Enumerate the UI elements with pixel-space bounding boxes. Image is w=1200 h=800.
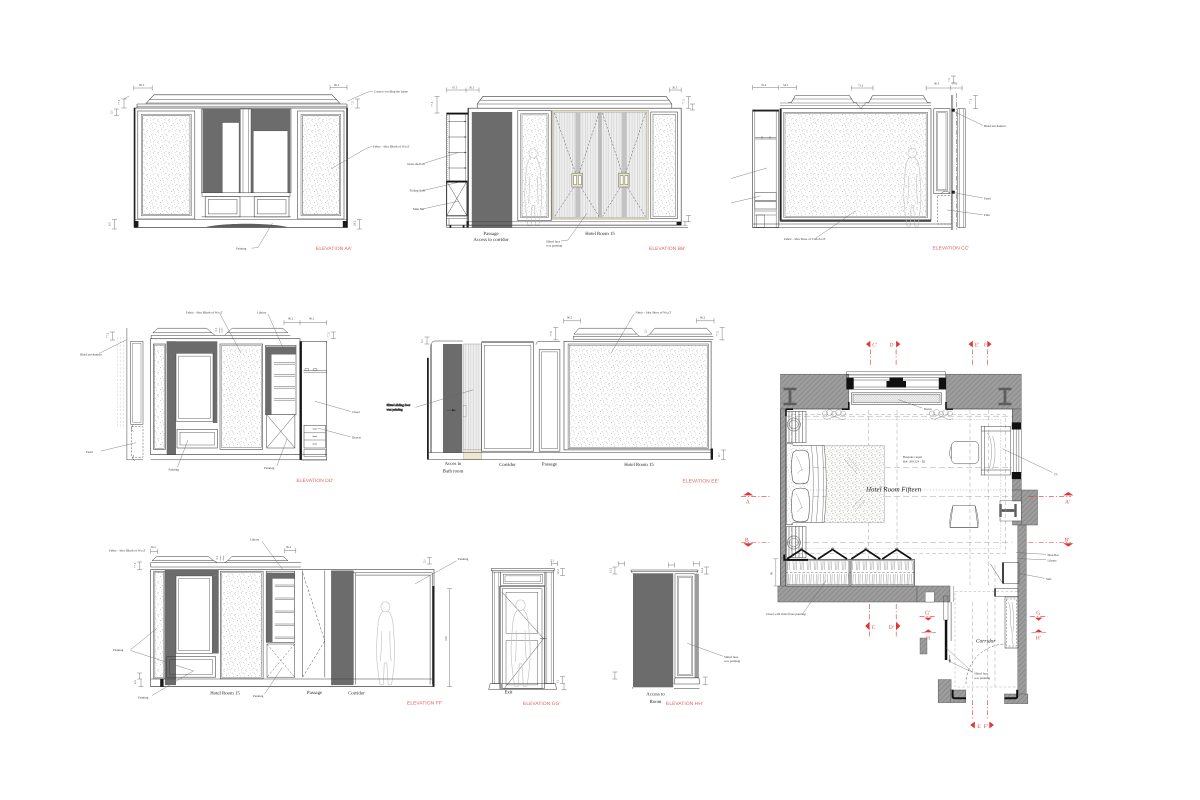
svg-text:Slitted sliding door: Slitted sliding door bbox=[387, 403, 411, 407]
svg-text:5.1: 5.1 bbox=[110, 110, 114, 114]
svg-text:G': G' bbox=[925, 611, 930, 617]
svg-text:Passage: Passage bbox=[542, 461, 557, 467]
svg-text:76.4: 76.4 bbox=[761, 83, 767, 87]
svg-text:12.2: 12.2 bbox=[700, 567, 704, 573]
svg-text:Painting: Painting bbox=[169, 467, 180, 471]
svg-text:Corridor: Corridor bbox=[499, 462, 516, 468]
svg-text:77.5: 77.5 bbox=[715, 331, 719, 337]
svg-text:Library: Library bbox=[257, 311, 267, 315]
svg-text:G: G bbox=[1036, 611, 1040, 617]
svg-text:ELEVATION AA': ELEVATION AA' bbox=[316, 246, 352, 252]
svg-text:Passage: Passage bbox=[483, 231, 498, 237]
svg-text:47.5: 47.5 bbox=[452, 85, 458, 89]
svg-text:Safe: Safe bbox=[1046, 577, 1052, 581]
svg-text:Painting: Painting bbox=[236, 247, 247, 251]
svg-text:Fabric - Idea Blinds of WxxT: Fabric - Idea Blinds of WxxT bbox=[373, 144, 410, 148]
svg-text:Access to corridor: Access to corridor bbox=[473, 237, 509, 243]
svg-text:12.2: 12.2 bbox=[609, 567, 613, 573]
svg-text:77.5: 77.5 bbox=[430, 101, 434, 107]
svg-text:Ref: 208 124 - B1: Ref: 208 124 - B1 bbox=[903, 459, 926, 463]
svg-text:Painting: Painting bbox=[113, 648, 124, 652]
svg-text:36.2: 36.2 bbox=[151, 545, 157, 549]
svg-text:Library: Library bbox=[250, 538, 260, 542]
svg-text:5.1: 5.1 bbox=[423, 559, 427, 563]
svg-text:Bath room: Bath room bbox=[443, 468, 464, 474]
svg-text:Exit: Exit bbox=[505, 690, 514, 696]
svg-text:C': C' bbox=[872, 343, 877, 349]
svg-text:4.5: 4.5 bbox=[108, 222, 112, 226]
svg-text:77.9: 77.9 bbox=[549, 331, 553, 337]
svg-text:96.2: 96.2 bbox=[700, 316, 706, 320]
svg-text:Fabric - Idea Blinds of WxxT: Fabric - Idea Blinds of WxxT bbox=[186, 311, 223, 315]
svg-text:46.8: 46.8 bbox=[934, 81, 940, 85]
svg-text:Room: Room bbox=[924, 407, 932, 411]
svg-text:A: A bbox=[746, 499, 750, 505]
svg-text:Room: Room bbox=[650, 699, 662, 705]
svg-text:77.5: 77.5 bbox=[117, 99, 121, 105]
svg-text:C: C bbox=[872, 625, 876, 631]
svg-text:318: 318 bbox=[444, 636, 448, 641]
svg-text:Closet with slitted faux paint: Closet with slitted faux painting bbox=[766, 612, 806, 616]
svg-text:A': A' bbox=[1065, 499, 1070, 505]
svg-text:7.5: 7.5 bbox=[351, 101, 355, 105]
svg-text:H': H' bbox=[1036, 636, 1041, 642]
svg-text:36.5: 36.5 bbox=[469, 85, 475, 89]
svg-text:77.5: 77.5 bbox=[133, 562, 137, 568]
svg-text:Slitted faux: Slitted faux bbox=[974, 672, 989, 676]
svg-text:wax painting: wax painting bbox=[387, 407, 404, 411]
svg-text:Drawer: Drawer bbox=[352, 436, 361, 440]
svg-text:77.5: 77.5 bbox=[326, 332, 330, 338]
svg-text:36.5: 36.5 bbox=[672, 85, 678, 89]
svg-text:57.6: 57.6 bbox=[952, 81, 958, 85]
svg-text:ELEVATION EE': ELEVATION EE' bbox=[683, 479, 719, 485]
svg-text:4.5: 4.5 bbox=[133, 680, 137, 684]
svg-text:96.2: 96.2 bbox=[309, 317, 315, 321]
svg-text:ELEVATION HH': ELEVATION HH' bbox=[666, 701, 703, 707]
svg-text:Mini Bar: Mini Bar bbox=[1048, 553, 1059, 557]
svg-text:ELEVATION DD': ELEVATION DD' bbox=[297, 478, 334, 484]
svg-text:Sliding shelf: Sliding shelf bbox=[410, 189, 427, 193]
svg-text:96.2: 96.2 bbox=[286, 545, 292, 549]
svg-text:ELEVATION GG': ELEVATION GG' bbox=[523, 701, 560, 707]
svg-text:Cornice scrolling the frame: Cornice scrolling the frame bbox=[374, 90, 409, 94]
svg-text:Blind mechanism: Blind mechanism bbox=[984, 124, 1006, 128]
svg-text:Hotel Room Fifteen: Hotel Room Fifteen bbox=[865, 486, 922, 494]
svg-text:B: B bbox=[745, 537, 749, 543]
svg-text:90: 90 bbox=[770, 572, 774, 576]
svg-text:Painting: Painting bbox=[458, 557, 469, 561]
svg-text:96.2: 96.2 bbox=[567, 316, 573, 320]
svg-text:Painting: Painting bbox=[138, 695, 149, 699]
svg-text:H: H bbox=[926, 636, 930, 642]
svg-text:5.1: 5.1 bbox=[551, 558, 555, 562]
svg-text:Fabric - Idea Blinds of WxxT: Fabric - Idea Blinds of WxxT bbox=[109, 549, 146, 553]
svg-text:77.5: 77.5 bbox=[106, 332, 110, 338]
svg-text:54.3: 54.3 bbox=[783, 83, 789, 87]
svg-text:Passage: Passage bbox=[307, 690, 322, 696]
svg-text:Painting: Painting bbox=[264, 466, 275, 470]
svg-text:Hotel Room 15: Hotel Room 15 bbox=[624, 462, 654, 468]
svg-text:24.5: 24.5 bbox=[353, 220, 357, 226]
svg-text:Acces to: Acces to bbox=[445, 461, 462, 467]
svg-text:77.5: 77.5 bbox=[682, 99, 686, 105]
svg-text:Corridor: Corridor bbox=[976, 639, 996, 645]
svg-text:Mini Bar: Mini Bar bbox=[413, 207, 424, 211]
svg-text:Fabric - Idea Show of WxxT: Fabric - Idea Show of WxxT bbox=[636, 310, 672, 314]
svg-text:12.2: 12.2 bbox=[556, 569, 560, 575]
svg-text:11.7: 11.7 bbox=[717, 452, 721, 458]
svg-text:Hotel Room 15: Hotel Room 15 bbox=[210, 691, 240, 697]
svg-text:B': B' bbox=[1065, 537, 1070, 543]
svg-text:77.5: 77.5 bbox=[969, 98, 973, 104]
svg-text:F: F bbox=[984, 343, 987, 349]
svg-text:11: 11 bbox=[556, 680, 560, 683]
svg-text:Plint: Plint bbox=[984, 213, 990, 217]
svg-text:ELEVATION BB': ELEVATION BB' bbox=[649, 246, 685, 252]
svg-text:wax painting: wax painting bbox=[974, 676, 991, 680]
svg-text:Hotel Room 15: Hotel Room 15 bbox=[585, 231, 615, 237]
svg-text:73.6: 73.6 bbox=[858, 83, 864, 87]
svg-text:ELEVATION FF': ELEVATION FF' bbox=[407, 701, 443, 707]
svg-text:Panel: Panel bbox=[86, 450, 93, 454]
svg-text:Corridor: Corridor bbox=[348, 691, 365, 697]
svg-text:Blind mechanism: Blind mechanism bbox=[80, 353, 102, 357]
svg-text:Panel: Panel bbox=[984, 196, 991, 200]
svg-text:7.5: 7.5 bbox=[947, 78, 951, 82]
svg-text:5.1: 5.1 bbox=[644, 329, 648, 333]
svg-text:Fabric - Idea Show of TxRxS-GT: Fabric - Idea Show of TxRxS-GT bbox=[784, 237, 826, 241]
svg-text:Closet: Closet bbox=[352, 410, 360, 414]
svg-text:5.1: 5.1 bbox=[420, 339, 424, 343]
svg-text:96.5: 96.5 bbox=[139, 83, 145, 87]
svg-text:F': F' bbox=[984, 724, 988, 730]
svg-text:E: E bbox=[977, 724, 981, 730]
svg-text:wax painting: wax painting bbox=[546, 244, 563, 248]
svg-text:wax painting: wax painting bbox=[724, 659, 741, 663]
svg-text:Access to: Access to bbox=[646, 692, 665, 698]
svg-text:E': E' bbox=[975, 343, 979, 349]
svg-text:D: D bbox=[890, 343, 894, 349]
svg-text:96.2: 96.2 bbox=[288, 317, 294, 321]
svg-text:5.1: 5.1 bbox=[214, 327, 218, 331]
svg-text:96.5: 96.5 bbox=[334, 83, 340, 87]
svg-text:Library: Library bbox=[1048, 558, 1058, 562]
svg-text:Painting: Painting bbox=[253, 694, 264, 698]
svg-text:5.1: 5.1 bbox=[215, 555, 219, 559]
svg-text:Glass shelf on: Glass shelf on bbox=[407, 162, 425, 166]
svg-text:D': D' bbox=[889, 625, 894, 631]
svg-text:ELEVATION CC': ELEVATION CC' bbox=[933, 246, 970, 252]
